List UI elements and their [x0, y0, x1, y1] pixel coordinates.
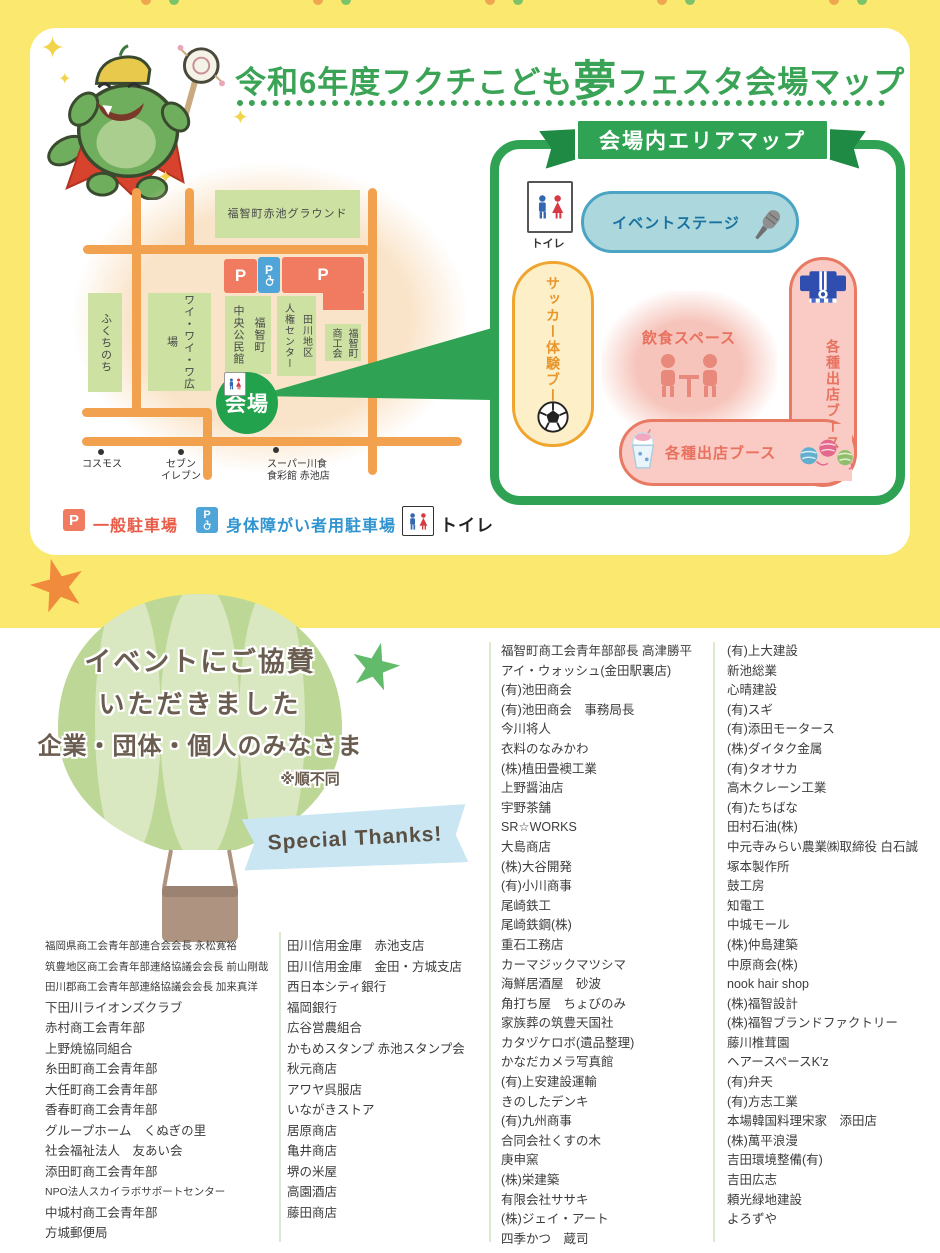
column-divider: [279, 932, 281, 1242]
toilet-label: トイレ: [521, 235, 575, 251]
sponsor-column-3: 福智町商工会青年部部長 高津勝平アイ・ウォッシュ(金田駅裏店)(有)池田商会(有…: [501, 642, 711, 1249]
sponsor-item: (有)タオサカ: [727, 760, 937, 780]
accessible-parking-icon: P: [258, 257, 280, 293]
sponsor-item: 中原商会(株): [727, 956, 937, 976]
sponsor-item: (有)池田商会: [501, 681, 711, 701]
sponsor-item: 知電工: [727, 897, 937, 917]
star-icon: [345, 637, 406, 698]
sparkle-icon: ✦: [232, 108, 249, 128]
sponsor-item: 藤田商店: [287, 1203, 487, 1224]
sponsor-item: 下田川ライオンズクラブ: [45, 998, 277, 1019]
zone-event-stage: イベントステージ: [581, 191, 799, 253]
sponsor-item: nook hair shop: [727, 975, 937, 995]
wheelchair-icon: [202, 520, 212, 530]
sponsor-item: 本場韓国料理宋家 添田店: [727, 1112, 937, 1132]
sponsor-item: 糸田町商工会青年部: [45, 1059, 277, 1080]
parking-letter: P: [69, 512, 79, 529]
stage-label: イベントステージ: [612, 212, 740, 233]
sponsor-item: 新池総業: [727, 662, 937, 682]
zone-soccer-booth: サッカー体験ブース: [512, 261, 594, 447]
shaved-ice-icon: [627, 427, 659, 471]
road: [185, 188, 194, 254]
landmark-cosmos: コスモス: [69, 459, 135, 471]
sponsor-note: ※順不同: [255, 768, 365, 789]
sponsor-column-4: (有)上大建設新池総業心晴建設(有)スギ(有)添田モータース(株)ダイタク金属(…: [727, 642, 937, 1230]
sponsor-item: 方城郵便局: [45, 1223, 277, 1244]
sponsor-item: (有)上大建設: [727, 642, 937, 662]
landmark-seven-eleven: セブン イレブン: [151, 459, 211, 483]
title-prefix: 令和6年度フクチこども: [235, 65, 573, 100]
parking-icon: P: [282, 257, 364, 293]
sponsor-item: 秋元商店: [287, 1059, 487, 1080]
sponsor-item: カーマジックマツシマ: [501, 956, 711, 976]
landmark-super: スーパー川食 食彩館 赤池店: [267, 459, 367, 483]
parking-letter: P: [265, 265, 273, 275]
accessible-parking-icon: P: [196, 507, 218, 533]
dotted-divider: [237, 100, 885, 106]
area-map: トイレ イベントステージ サッカー体験ブース: [490, 140, 905, 505]
building-shokokai: 福智町 商工会: [325, 324, 361, 361]
dining-icon: [654, 351, 724, 403]
parking-area: [323, 293, 364, 310]
parking-letter: P: [317, 265, 328, 285]
sponsor-item: 堺の米屋: [287, 1162, 487, 1183]
building-plaza: ワイ・ワイ・ワ広場: [148, 293, 211, 391]
road: [368, 188, 377, 475]
sponsor-item: 添田町商工会青年部: [45, 1162, 277, 1183]
booth-bottom-label: 各種出店ブース: [665, 442, 776, 463]
sparkle-icon: ✦: [58, 72, 71, 88]
sponsor-item: 大任町商工会青年部: [45, 1080, 277, 1101]
sponsor-item: (株)仲島建築: [727, 936, 937, 956]
microphone-icon: [748, 206, 786, 244]
sponsor-item: 大島商店: [501, 838, 711, 858]
sponsor-item: きのしたデンキ: [501, 1093, 711, 1113]
road: [132, 188, 141, 414]
sponsor-item: 合同会社くすの木: [501, 1132, 711, 1152]
sponsor-item: (有)弁天: [727, 1073, 937, 1093]
sponsor-item: 福智町商工会青年部部長 高津勝平: [501, 642, 711, 662]
sponsor-column-2: 田川信用金庫 赤池支店田川信用金庫 金田・方城支店西日本シティ銀行福岡銀行広谷営…: [287, 936, 487, 1223]
sponsor-item: 尾崎鉄工: [501, 897, 711, 917]
sponsor-item: 吉田広志: [727, 1171, 937, 1191]
sponsor-item: 鼓工房: [727, 877, 937, 897]
sparkle-icon: ✦: [40, 34, 65, 64]
sponsor-item: 田村石油(株): [727, 818, 937, 838]
sponsor-item: 福岡県商工会青年部連合会会長 永松寛裕: [45, 936, 277, 957]
sponsor-item: 四季かつ 蔵司: [501, 1230, 711, 1250]
sponsor-item: 有限会社ササキ: [501, 1191, 711, 1211]
sponsor-item: SR☆WORKS: [501, 818, 711, 838]
sponsor-item: かなだカメラ写真館: [501, 1053, 711, 1073]
sponsor-item: 塚本製作所: [727, 858, 937, 878]
building-ground: 福智町赤池グラウンド: [215, 190, 360, 238]
sponsor-column-1: 福岡県商工会青年部連合会会長 永松寛裕筑豊地区商工会青年部連絡協議会会長 前山剛…: [45, 936, 277, 1244]
title-emphasis: 夢: [573, 58, 617, 106]
map-dot: [178, 449, 184, 455]
map-dot: [273, 447, 279, 453]
sponsor-item: 田川郡商工会青年部連絡協議会会長 加来真洋: [45, 977, 277, 998]
sponsor-item: 庚申窯: [501, 1151, 711, 1171]
sponsor-item: (株)ダイタク金属: [727, 740, 937, 760]
sponsor-item: 広谷営農組合: [287, 1018, 487, 1039]
sponsor-item: いながきストア: [287, 1100, 487, 1121]
happi-coat-icon: [800, 267, 846, 309]
sponsor-item: 赤村商工会青年部: [45, 1018, 277, 1039]
sponsor-item: 家族葬の筑豊天国社: [501, 1014, 711, 1034]
title-suffix: フェスタ会場マップ: [617, 65, 905, 100]
sponsor-item: (株)大谷開発: [501, 858, 711, 878]
map-dot: [98, 449, 104, 455]
sponsor-item: (有)スギ: [727, 701, 937, 721]
sponsor-item: 中城モール: [727, 916, 937, 936]
road: [83, 245, 370, 254]
road: [82, 408, 212, 417]
sponsor-item: 海鮮居酒屋 砂波: [501, 975, 711, 995]
sponsor-item: (株)植田畳襖工業: [501, 760, 711, 780]
sponsor-item: かもめスタンプ 赤池スタンプ会: [287, 1039, 487, 1060]
sponsor-item: 中城村商工会青年部: [45, 1203, 277, 1224]
sponsor-item: アワヤ呉服店: [287, 1080, 487, 1101]
sponsor-item: 高木クレーン工業: [727, 779, 937, 799]
parking-icon: P: [63, 509, 85, 531]
sponsor-item: (有)方志工業: [727, 1093, 937, 1113]
page-title: 令和6年度フクチこども夢フェスタ会場マップ: [235, 44, 900, 106]
sponsor-item: 社会福祉法人 友あい会: [45, 1141, 277, 1162]
soccer-label: サッカー体験ブース: [543, 276, 563, 420]
sponsor-item: 藤川椎茸園: [727, 1034, 937, 1054]
sponsor-item: (有)九州商事: [501, 1112, 711, 1132]
legend-accessible-parking: 身体障がい者用駐車場: [226, 512, 396, 536]
parking-icon: P: [224, 259, 257, 293]
sponsor-item: (株)福智設計: [727, 995, 937, 1015]
building-community-hall: 福智町 中央公民館: [225, 296, 271, 374]
sponsor-item: (有)たちばな: [727, 799, 937, 819]
sponsor-item: (株)福智ブランドファクトリー: [727, 1014, 937, 1034]
sponsor-item: 重石工務店: [501, 936, 711, 956]
sponsor-item: 高園酒店: [287, 1182, 487, 1203]
toilet-icon: [224, 372, 246, 396]
sponsor-item: 心晴建設: [727, 681, 937, 701]
sponsor-item: 上野焼協同組合: [45, 1039, 277, 1060]
sponsor-item: 亀井商店: [287, 1141, 487, 1162]
road: [82, 437, 462, 446]
toilet-icon: [402, 506, 434, 536]
building-jinken-center: 田川地区 人権センター: [277, 296, 316, 376]
parking-letter: P: [203, 510, 210, 520]
food-label: 飲食スペース: [601, 327, 777, 348]
event-map-poster: ✦ ✦ ✦ ✦ 令和6年度フクチこども夢フェスタ会場マップ 福智町赤池グラウンド…: [0, 0, 940, 1253]
parking-letter: P: [235, 266, 246, 286]
street-map: 福智町赤池グラウンド ふくちのち ワイ・ワイ・ワ広場 福智町 中央公民館 田川地…: [55, 160, 485, 505]
sponsor-heading-line2: いただきました: [60, 684, 340, 721]
sponsor-heading-line1: イベントにご協賛: [60, 640, 340, 679]
sponsor-item: NPO法人スカイラボサポートセンター: [45, 1182, 277, 1203]
sponsor-item: 田川信用金庫 赤池支店: [287, 936, 487, 957]
legend-general-parking: 一般駐車場: [93, 512, 178, 536]
sponsor-item: (有)池田商会 事務局長: [501, 701, 711, 721]
sponsor-item: (有)小川商事: [501, 877, 711, 897]
legend-toilet: トイレ: [440, 511, 494, 536]
sponsor-item: (株)栄建築: [501, 1171, 711, 1191]
building-fukuchinochi: ふくちのち: [88, 293, 122, 392]
sponsor-item: (株)ジェイ・アート: [501, 1210, 711, 1230]
column-divider: [713, 642, 715, 1242]
sponsor-item: 筑豊地区商工会青年部連絡協議会会長 前山剛哉: [45, 957, 277, 978]
sponsor-item: (株)萬平浪漫: [727, 1132, 937, 1152]
sponsor-item: 上野醤油店: [501, 779, 711, 799]
sponsor-item: (有)上安建設運輸: [501, 1073, 711, 1093]
toilet-icon: [527, 181, 573, 233]
sponsor-item: 角打ち屋 ちょびのみ: [501, 995, 711, 1015]
sponsor-item: 今川将人: [501, 720, 711, 740]
yarn-icon: [797, 431, 855, 471]
sponsor-item: 香春町商工会青年部: [45, 1100, 277, 1121]
soccer-ball-icon: [536, 400, 570, 434]
sponsor-item: ヘアースペースK'z: [727, 1053, 937, 1073]
sponsor-item: 居原商店: [287, 1121, 487, 1142]
sponsor-item: 宇野茶舗: [501, 799, 711, 819]
sponsor-item: グループホーム くぬぎの里: [45, 1121, 277, 1142]
sponsor-item: 西日本シティ銀行: [287, 977, 487, 998]
sponsor-item: よろずや: [727, 1210, 937, 1230]
sponsor-heading-line3: 企業・団体・個人のみなさま: [25, 726, 375, 761]
sponsor-item: 吉田環境整備(有): [727, 1151, 937, 1171]
column-divider: [489, 642, 491, 1242]
sponsor-item: アイ・ウォッシュ(金田駅裏店): [501, 662, 711, 682]
sponsor-item: 田川信用金庫 金田・方城支店: [287, 957, 487, 978]
sponsor-item: 頼光緑地建設: [727, 1191, 937, 1211]
wheelchair-icon: [264, 275, 275, 286]
sponsor-item: カタヅケロボ(遺品整理): [501, 1034, 711, 1054]
sponsor-item: 中元寺みらい農業㈱取締役 白石誠: [727, 838, 937, 858]
sponsor-item: (有)添田モータース: [727, 720, 937, 740]
area-map-banner: 会場内エリアマップ: [575, 118, 830, 162]
sponsor-item: 衣料のなみかわ: [501, 740, 711, 760]
sponsor-item: 福岡銀行: [287, 998, 487, 1019]
sponsor-item: 尾崎鉄鋼(株): [501, 916, 711, 936]
